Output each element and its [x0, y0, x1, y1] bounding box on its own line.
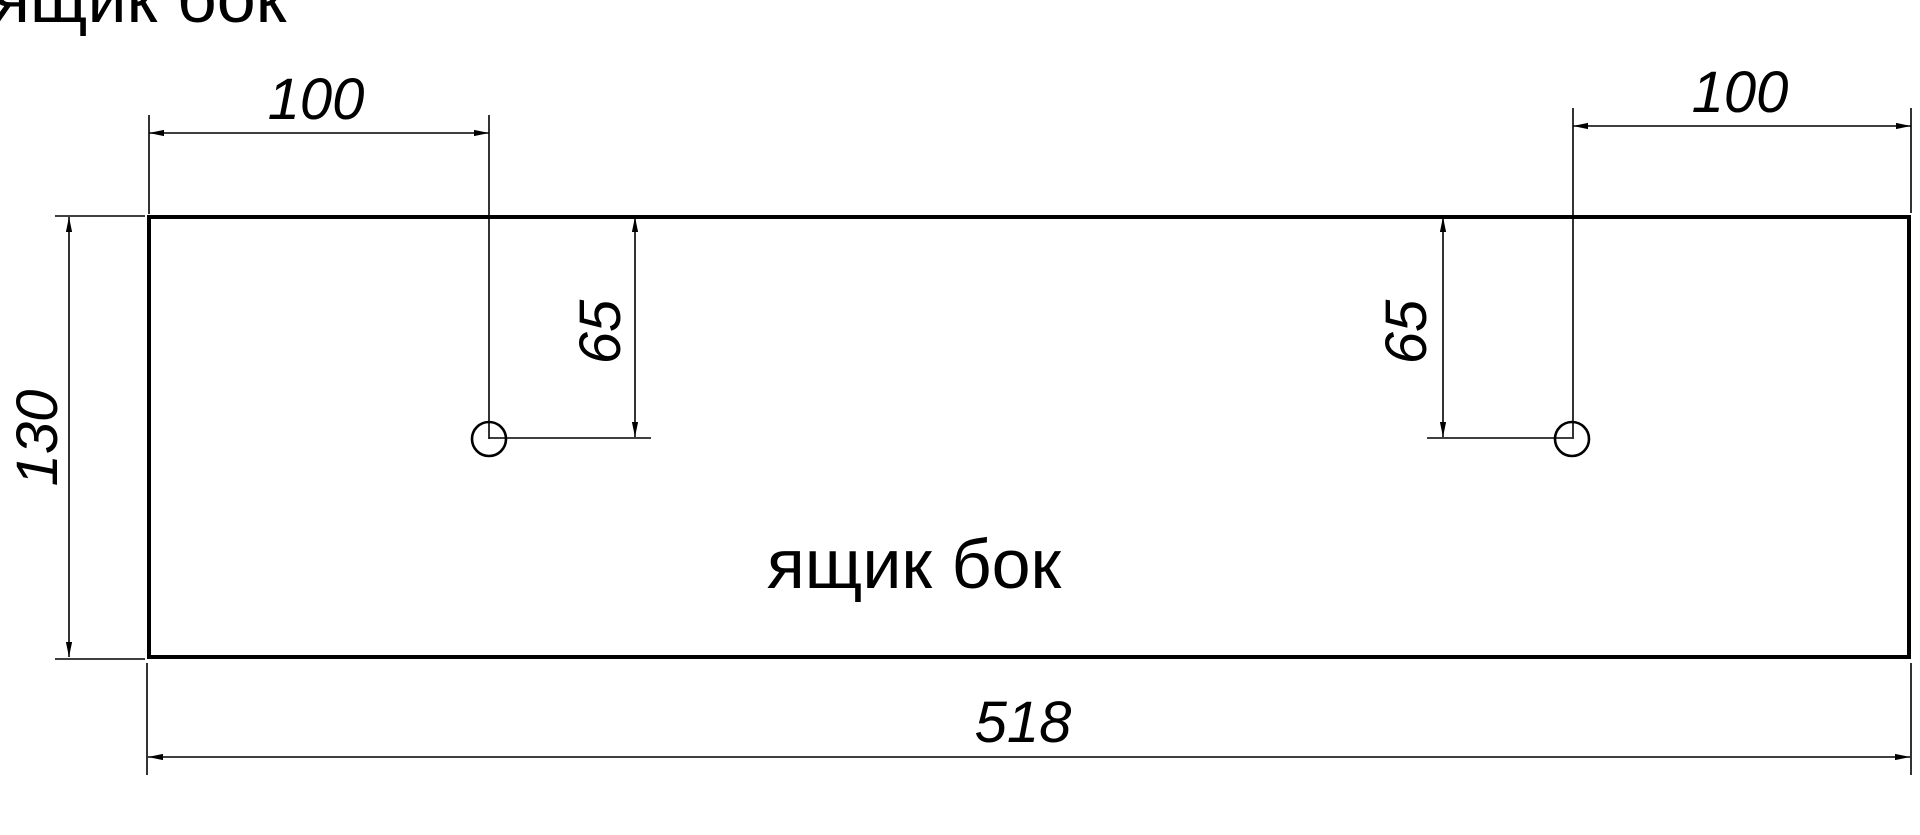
arrowhead-icon [66, 217, 72, 232]
part-label: ящик бок [767, 525, 1062, 603]
arrowhead-icon [632, 422, 638, 437]
dim-hole-offset-left: 100 [149, 67, 489, 439]
dim-hole-depth-right: 65 [1374, 217, 1572, 438]
dim-value-hole-depth-left: 65 [568, 299, 633, 364]
arrowhead-icon [1440, 217, 1446, 232]
arrowhead-icon [1896, 123, 1911, 129]
dim-value-hole-offset-left: 100 [268, 67, 365, 132]
arrowhead-icon [1573, 123, 1588, 129]
dim-value-hole-depth-right: 65 [1374, 299, 1439, 364]
dim-hole-depth-left: 65 [489, 217, 651, 438]
dim-panel-height: 130 [5, 216, 145, 659]
arrowhead-icon [148, 754, 163, 760]
dim-panel-width: 518 [147, 663, 1911, 775]
dim-hole-offset-right: 100 [1573, 60, 1911, 439]
arrowhead-icon [1440, 422, 1446, 437]
dim-value-panel-width: 518 [975, 690, 1072, 755]
drill-hole-right [1555, 422, 1589, 456]
drawing-canvas: ящик бок 100 100 [0, 0, 1920, 835]
dim-value-panel-height: 130 [5, 390, 70, 487]
drawing-title: ящик бок [0, 0, 287, 37]
arrowhead-icon [1895, 754, 1910, 760]
technical-drawing: ящик бок 100 100 [0, 0, 1920, 835]
arrowhead-icon [474, 130, 489, 136]
arrowhead-icon [632, 217, 638, 232]
dim-value-hole-offset-right: 100 [1692, 60, 1789, 125]
arrowhead-icon [149, 130, 164, 136]
arrowhead-icon [66, 642, 72, 657]
